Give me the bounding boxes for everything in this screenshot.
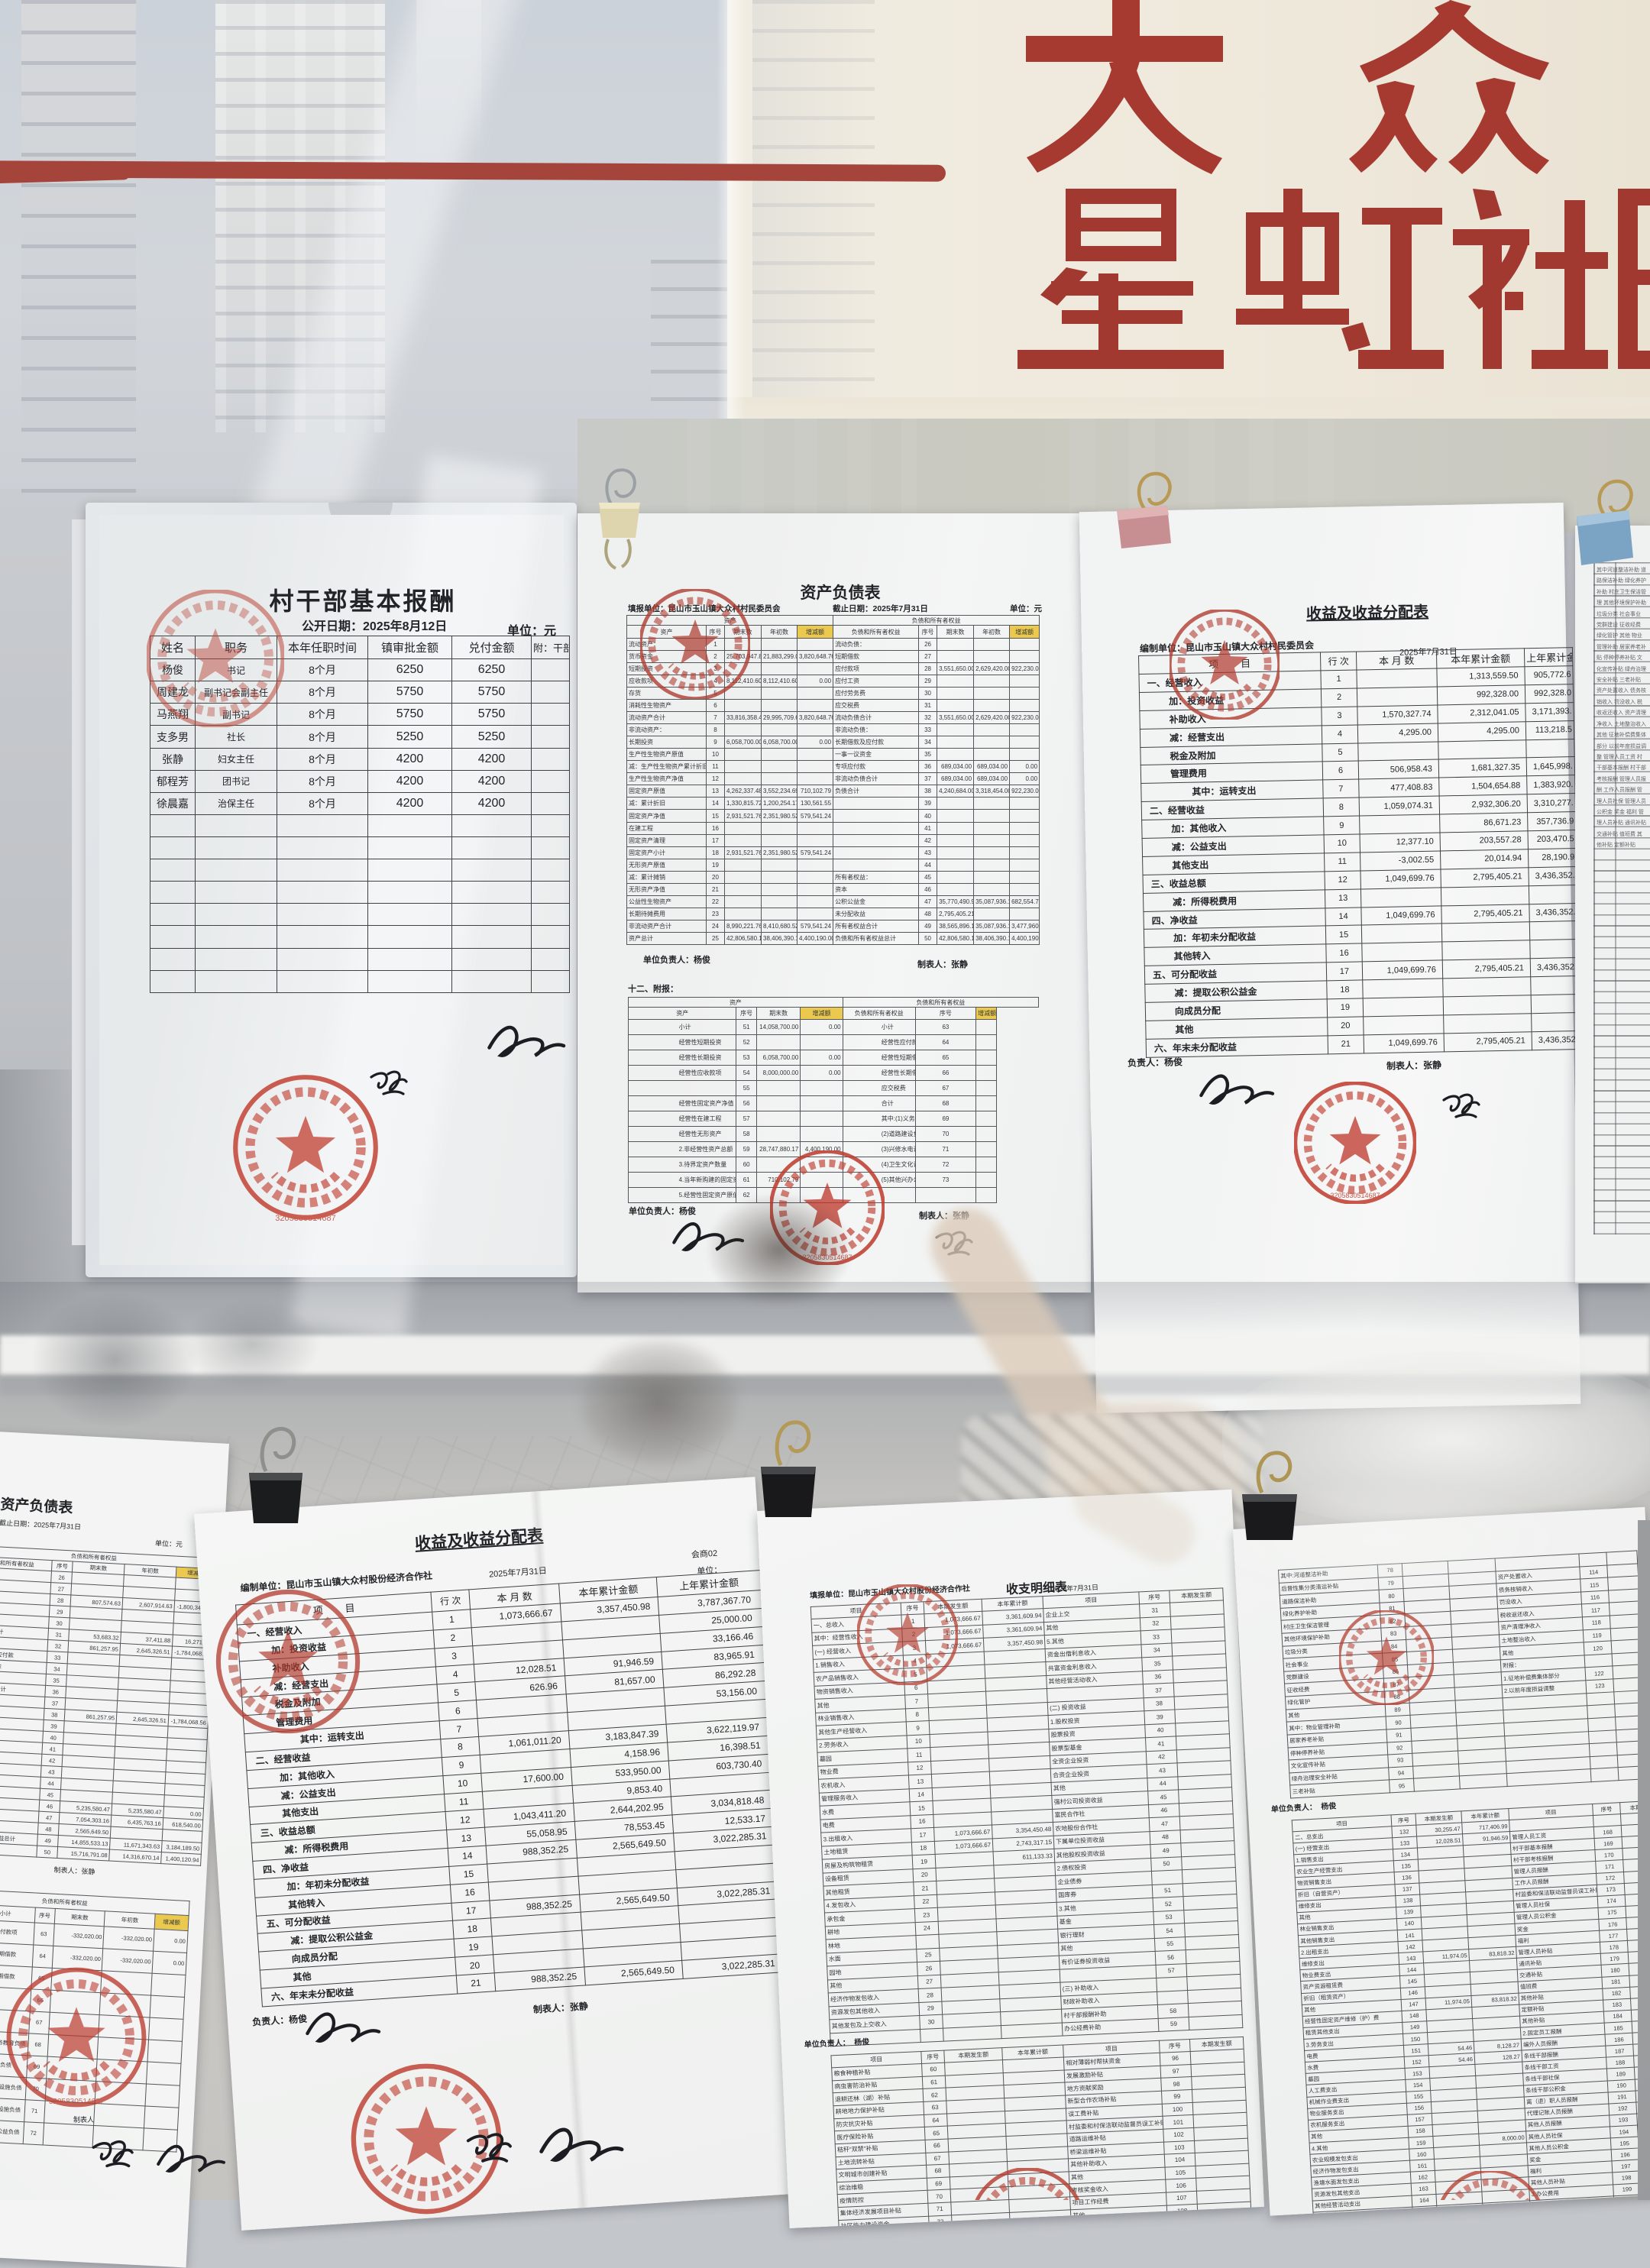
- svg-text:3205830514687: 3205830514687: [275, 1214, 336, 1223]
- svg-text:3205830514687: 3205830514687: [49, 2098, 105, 2106]
- svg-text:3205830514687: 3205830514687: [1330, 1192, 1380, 1199]
